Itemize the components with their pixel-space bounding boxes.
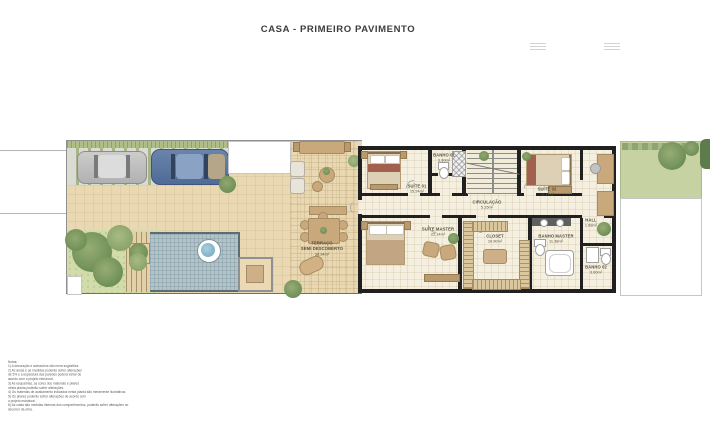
room-area: 1.68m² bbox=[585, 223, 597, 228]
plant-icon bbox=[597, 222, 611, 236]
sink bbox=[556, 219, 564, 227]
lot-bottom-line bbox=[66, 293, 362, 294]
room-area: 5.15m² bbox=[472, 205, 501, 210]
tree-icon bbox=[93, 257, 123, 287]
side-table bbox=[344, 142, 351, 152]
tree-icon bbox=[65, 229, 87, 251]
wall bbox=[428, 150, 432, 193]
room-area: 3.60m² bbox=[585, 270, 607, 275]
wall bbox=[362, 193, 408, 196]
bench bbox=[424, 274, 460, 282]
toilet bbox=[535, 244, 545, 256]
room-label-banho-master: BANHO MASTER 11.38m² bbox=[538, 234, 573, 244]
pillow bbox=[385, 155, 400, 164]
room-label-closet: CLOSET 10.90m² bbox=[486, 234, 504, 244]
pillow bbox=[386, 225, 404, 235]
room-label-suite-01: SUÍTE 01 15.24m² bbox=[408, 184, 427, 194]
sofa bbox=[299, 141, 345, 154]
room-label-banho-01: BANHO 01 3.30m² bbox=[433, 153, 455, 163]
side-table bbox=[293, 142, 300, 152]
tree-icon bbox=[129, 253, 147, 271]
wall bbox=[580, 218, 583, 293]
uncovered-patio bbox=[228, 141, 291, 174]
room-area: 3.30m² bbox=[433, 158, 455, 163]
headboard bbox=[368, 152, 400, 154]
wall bbox=[432, 173, 438, 176]
floorplan-page: CASA - PRIMEIRO PAVIMENTO bbox=[0, 0, 710, 432]
stair-stringer bbox=[492, 150, 494, 194]
bed-runner bbox=[368, 164, 400, 172]
grass-strip bbox=[67, 141, 228, 148]
car-windshield bbox=[171, 154, 175, 179]
room-area: 22.14m² bbox=[422, 232, 454, 237]
nightstand bbox=[361, 151, 368, 159]
pillow bbox=[561, 157, 570, 171]
car-rear-glass bbox=[126, 155, 130, 178]
cabinet bbox=[597, 191, 614, 216]
room-label-terraco: TERRAÇO SEMI DESCOBERTO 36.34m² bbox=[301, 241, 343, 257]
bathtub-inner bbox=[549, 254, 571, 273]
wall bbox=[580, 150, 583, 180]
console-table bbox=[309, 206, 347, 215]
room-area: 36.34m² bbox=[301, 252, 343, 257]
double-bed bbox=[526, 154, 572, 186]
car-cargo bbox=[208, 154, 225, 179]
spa-water bbox=[201, 243, 215, 257]
wall bbox=[362, 215, 430, 218]
platform-table bbox=[246, 265, 264, 283]
dimension-mark bbox=[604, 42, 620, 50]
armchair bbox=[439, 244, 457, 262]
coffee-table bbox=[312, 181, 323, 192]
vanity bbox=[586, 247, 599, 263]
toilet bbox=[601, 253, 611, 265]
shrub-icon bbox=[219, 176, 236, 193]
plant-icon bbox=[522, 152, 531, 161]
plant-icon bbox=[323, 168, 330, 175]
plant-icon bbox=[320, 227, 327, 234]
equipment-pad bbox=[67, 276, 82, 295]
bed-bench bbox=[370, 184, 398, 190]
door-arc bbox=[350, 200, 365, 215]
plant-icon bbox=[284, 280, 302, 298]
pillow bbox=[561, 171, 570, 185]
lot-boundary-line bbox=[0, 213, 66, 214]
car-windshield bbox=[94, 155, 98, 178]
lot-boundary-line bbox=[0, 150, 66, 151]
spa-circle bbox=[197, 239, 221, 263]
bed-blanket bbox=[367, 240, 404, 264]
desk-chair bbox=[590, 163, 601, 174]
room-label-circulacao: CIRCULAÇÃO 5.15m² bbox=[472, 200, 501, 210]
vanity-counter bbox=[532, 218, 571, 226]
toilet bbox=[439, 167, 449, 179]
pillow bbox=[370, 155, 385, 164]
wardrobe bbox=[472, 221, 508, 232]
wall bbox=[452, 193, 468, 196]
dimension-mark bbox=[530, 42, 546, 50]
room-area: 11.38m² bbox=[538, 239, 573, 244]
closet-ottoman bbox=[483, 249, 507, 264]
room-area: 15.24m² bbox=[408, 189, 427, 194]
room-label-hall: HALL 1.68m² bbox=[585, 218, 597, 228]
pillow bbox=[369, 225, 387, 235]
edge-foliage bbox=[700, 139, 710, 169]
notes-block: Notas: 1) A decoração e acessórios são m… bbox=[8, 360, 128, 412]
room-label-suite-master: SUÍTE MASTER 22.14m² bbox=[422, 227, 454, 237]
headboard bbox=[367, 222, 404, 224]
room-label-banho-02: BANHO 02 3.60m² bbox=[585, 265, 607, 275]
rear-lot bbox=[620, 198, 702, 296]
plant-icon bbox=[479, 151, 489, 161]
tree-icon bbox=[684, 141, 699, 156]
wardrobe bbox=[472, 279, 521, 290]
nightstand bbox=[404, 221, 411, 230]
armchair bbox=[290, 178, 305, 194]
bathtub bbox=[545, 250, 574, 276]
room-area: 10.90m² bbox=[486, 239, 504, 244]
room-area: 15.41m² bbox=[538, 192, 557, 197]
deck-platform bbox=[238, 257, 273, 292]
nightstand bbox=[361, 221, 368, 230]
car-roof bbox=[98, 155, 126, 178]
page-title: CASA - PRIMEIRO PAVIMENTO bbox=[261, 24, 416, 35]
tree-icon bbox=[658, 142, 686, 170]
armchair bbox=[290, 161, 305, 177]
car-silver bbox=[77, 151, 147, 184]
double-bed bbox=[366, 221, 405, 265]
sink bbox=[540, 219, 548, 227]
tree-icon bbox=[107, 225, 133, 251]
armchair bbox=[422, 241, 441, 259]
car-blue bbox=[151, 149, 229, 185]
note-line: decorrer da obra. bbox=[8, 408, 128, 412]
room-label-suite-02: SUÍTE 02 15.41m² bbox=[538, 187, 557, 197]
nightstand bbox=[400, 151, 407, 159]
wall bbox=[583, 243, 612, 246]
car-roof bbox=[176, 154, 203, 179]
